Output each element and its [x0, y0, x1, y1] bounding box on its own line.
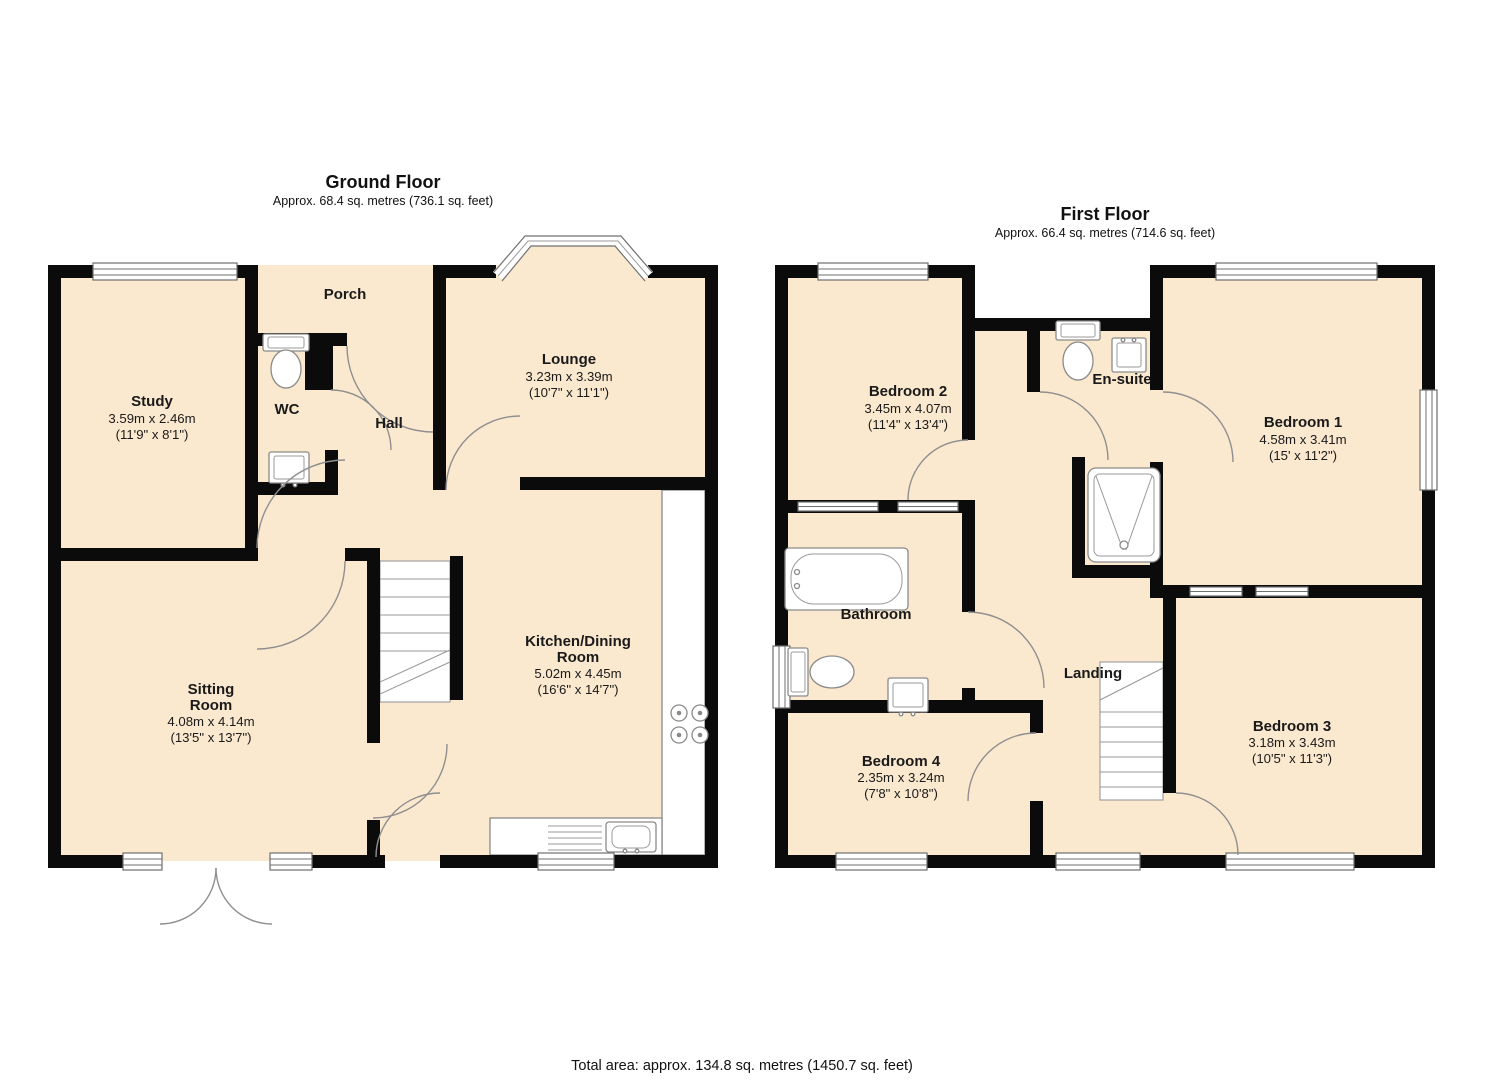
- room-dims-lounge-ft: (10'7" x 11'1"): [529, 385, 609, 400]
- first-floor-title-text: First Floor: [855, 204, 1355, 224]
- floorplan-drawing: Porch Study 3.59m x 2.46m (11'9" x 8'1")…: [0, 0, 1485, 1080]
- room-dims-bedroom4-m: 2.35m x 3.24m: [857, 770, 944, 785]
- room-dims-bedroom2-m: 3.45m x 4.07m: [864, 401, 951, 416]
- room-label-bedroom2: Bedroom 2: [869, 383, 947, 400]
- room-dims-kitchen-m: 5.02m x 4.45m: [534, 666, 621, 681]
- ground-floor-title-text: Ground Floor: [133, 172, 633, 192]
- room-dims-bedroom3-ft: (10'5" x 11'3"): [1252, 751, 1332, 766]
- room-dims-study-ft: (11'9" x 8'1"): [116, 427, 189, 442]
- french-doors-symbol: [160, 868, 216, 924]
- ground-floor-area-text: Approx. 68.4 sq. metres (736.1 sq. feet): [133, 194, 633, 208]
- room-dims-study-m: 3.59m x 2.46m: [108, 411, 195, 426]
- room-label-sitting-1: Sitting: [188, 681, 235, 698]
- kitchen-counter-right: [662, 490, 705, 855]
- room-label-wc: WC: [275, 401, 300, 418]
- room-label-landing: Landing: [1064, 665, 1122, 682]
- first-floor-plan: Bedroom 2 3.45m x 4.07m (11'4" x 13'4") …: [773, 263, 1437, 870]
- room-label-lounge: Lounge: [542, 351, 596, 368]
- wc-basin-fixture: [269, 452, 309, 487]
- room-label-kitchen-2: Room: [557, 649, 600, 666]
- room-dims-kitchen-ft: (16'6" x 14'7"): [537, 682, 618, 697]
- room-label-porch: Porch: [324, 286, 367, 303]
- room-label-ensuite: En-suite: [1092, 371, 1151, 388]
- ground-floor-plan: Porch Study 3.59m x 2.46m (11'9" x 8'1")…: [48, 236, 718, 924]
- first-floor-area-text: Approx. 66.4 sq. metres (714.6 sq. feet): [855, 226, 1355, 240]
- first-floor-title: First Floor Approx. 66.4 sq. metres (714…: [855, 204, 1355, 240]
- room-label-bathroom: Bathroom: [841, 606, 912, 623]
- room-label-kitchen-1: Kitchen/Dining: [525, 633, 631, 650]
- total-area-text: Total area: approx. 134.8 sq. metres (14…: [392, 1058, 1092, 1074]
- room-label-sitting-2: Room: [190, 697, 233, 714]
- first-floor-stairs: [1100, 662, 1163, 800]
- room-dims-sitting-ft: (13'5" x 13'7"): [170, 730, 251, 745]
- room-dims-bedroom2-ft: (11'4" x 13'4"): [868, 417, 948, 432]
- room-dims-sitting-m: 4.08m x 4.14m: [167, 714, 254, 729]
- ground-floor-title: Ground Floor Approx. 68.4 sq. metres (73…: [133, 172, 633, 208]
- room-label-bedroom4: Bedroom 4: [862, 753, 941, 770]
- room-dims-bedroom1-ft: (15' x 11'2"): [1269, 448, 1337, 463]
- room-label-bedroom3: Bedroom 3: [1253, 718, 1331, 735]
- room-label-hall: Hall: [375, 415, 403, 432]
- room-dims-bedroom4-ft: (7'8" x 10'8"): [864, 786, 938, 801]
- ground-floor-stairs: [380, 561, 450, 702]
- room-label-study: Study: [131, 393, 173, 410]
- ensuite-basin-fixture: [1112, 338, 1146, 372]
- bathroom-basin-fixture: [888, 678, 928, 716]
- room-label-bedroom1: Bedroom 1: [1264, 414, 1342, 431]
- bath-fixture: [785, 548, 908, 610]
- floorplan-page: Ground Floor Approx. 68.4 sq. metres (73…: [0, 0, 1485, 1080]
- shower-fixture: [1088, 468, 1160, 562]
- room-dims-lounge-m: 3.23m x 3.39m: [525, 369, 612, 384]
- room-dims-bedroom1-m: 4.58m x 3.41m: [1259, 432, 1346, 447]
- room-dims-bedroom3-m: 3.18m x 3.43m: [1248, 735, 1335, 750]
